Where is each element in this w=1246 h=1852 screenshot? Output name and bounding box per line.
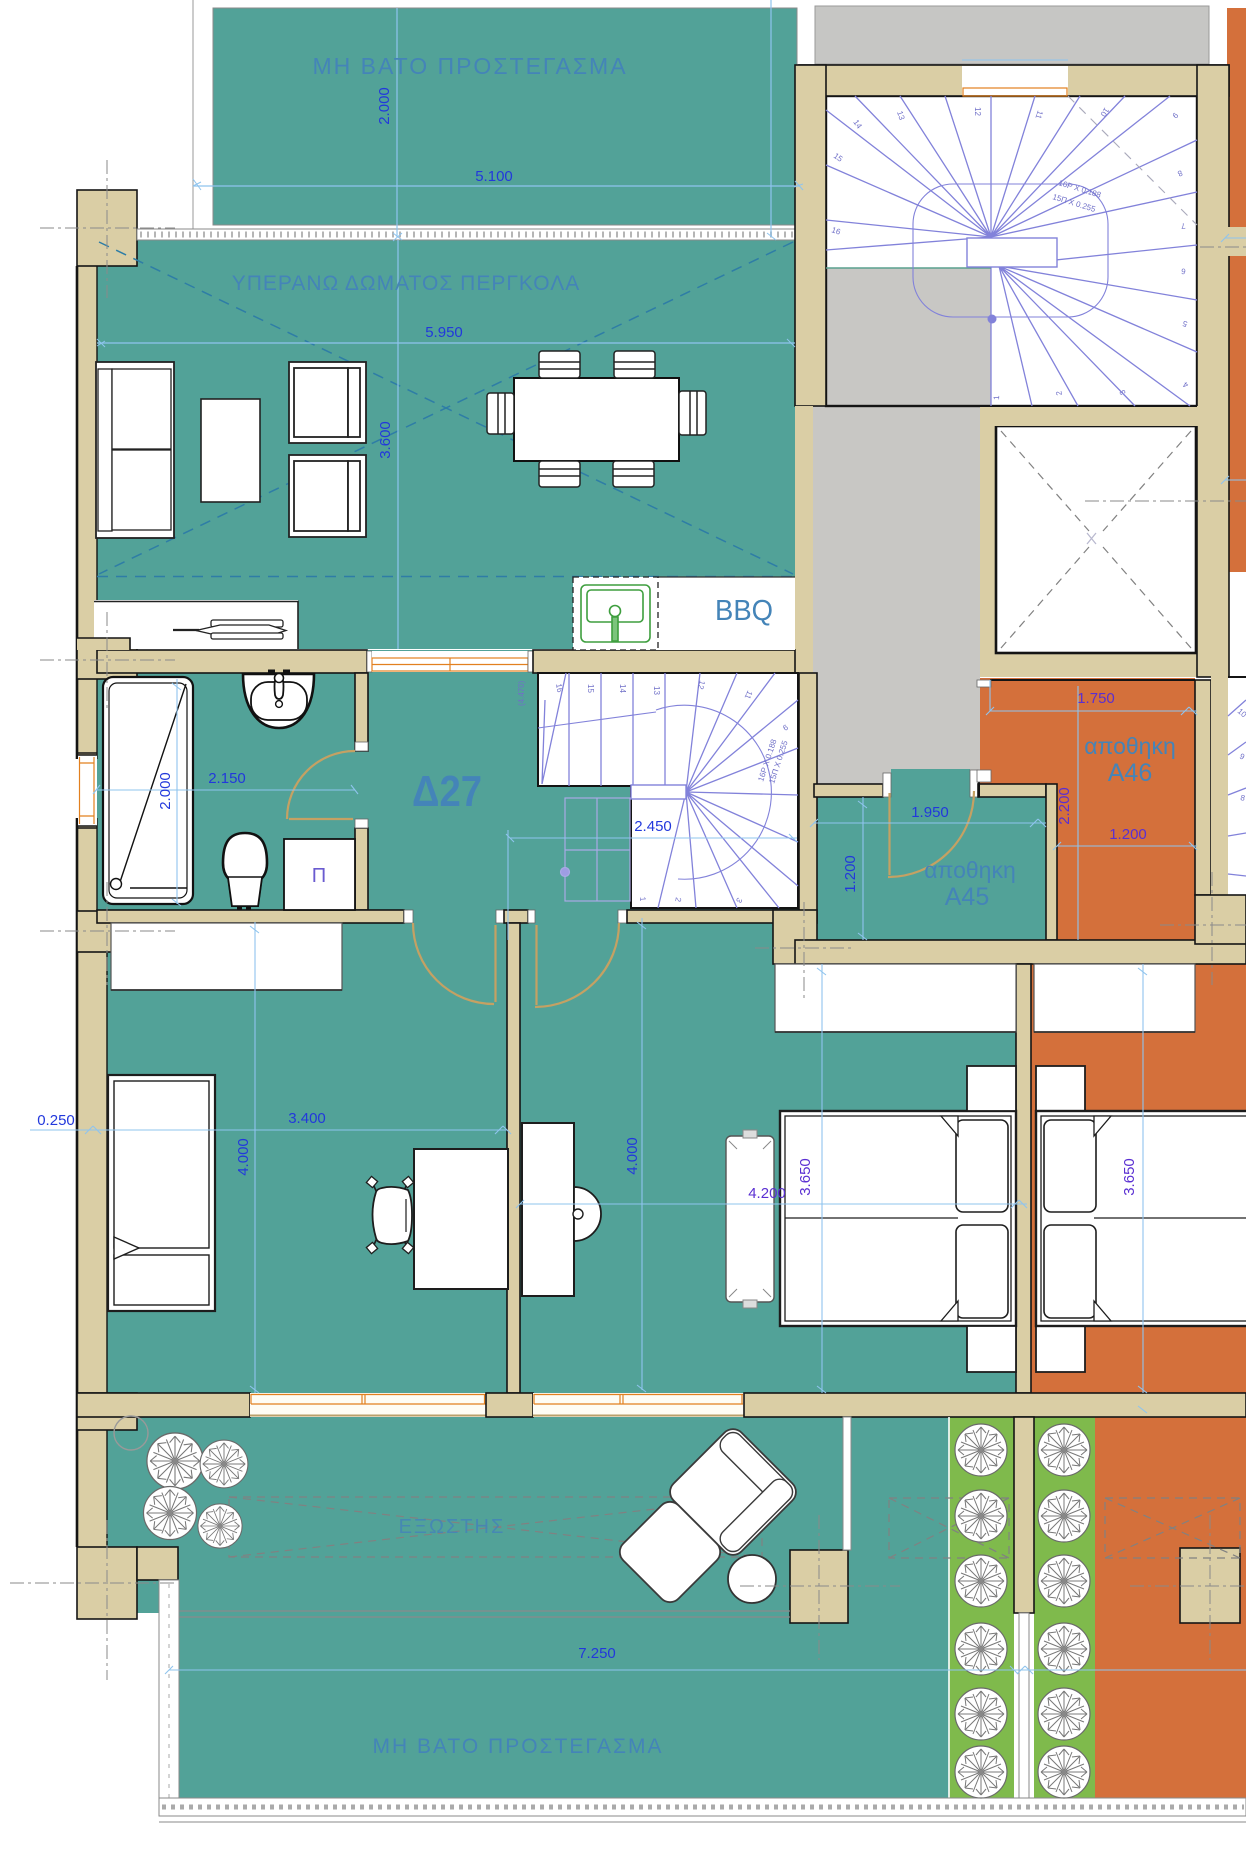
svg-text:2.200: 2.200	[1056, 787, 1073, 825]
svg-text:0.250: 0.250	[37, 1112, 75, 1129]
svg-text:3.400: 3.400	[288, 1110, 326, 1127]
svg-text:ΜΗ ΒΑΤΟ ΠΡΟΣΤΕΓΑΣΜΑ: ΜΗ ΒΑΤΟ ΠΡΟΣΤΕΓΑΣΜΑ	[312, 53, 627, 79]
svg-text:2.150: 2.150	[208, 770, 246, 787]
svg-text:ΜΗ ΒΑΤΟ ΠΡΟΣΤΕΓΑΣΜΑ: ΜΗ ΒΑΤΟ ΠΡΟΣΤΕΓΑΣΜΑ	[372, 1735, 663, 1758]
svg-text:αποθηκη: αποθηκη	[924, 857, 1016, 883]
svg-text:1.200: 1.200	[842, 855, 859, 893]
svg-text:15: 15	[586, 684, 595, 693]
svg-text:ΕΞΩΣΤΗΣ: ΕΞΩΣΤΗΣ	[399, 1516, 506, 1538]
svg-text:αποθηκη: αποθηκη	[1084, 733, 1176, 759]
svg-text:14: 14	[618, 684, 627, 693]
svg-text:7.250: 7.250	[578, 1645, 616, 1662]
svg-text:8: 8	[1240, 793, 1246, 803]
svg-text:4.200: 4.200	[748, 1185, 786, 1202]
svg-text:4.000: 4.000	[235, 1138, 252, 1176]
svg-text:5.100: 5.100	[475, 168, 513, 185]
svg-text:9: 9	[1238, 752, 1246, 762]
svg-text:(4.470): (4.470)	[517, 680, 526, 706]
svg-text:2.000: 2.000	[157, 772, 174, 810]
svg-text:1.200: 1.200	[1109, 826, 1147, 843]
svg-text:3.650: 3.650	[797, 1158, 814, 1196]
svg-text:13: 13	[652, 686, 661, 695]
svg-text:1.750: 1.750	[1077, 690, 1115, 707]
svg-text:Δ27: Δ27	[412, 767, 482, 816]
svg-text:ΥΠΕΡΑΝΩ ΔΩΜΑΤΟΣ ΠΕΡΓΚΟΛΑ: ΥΠΕΡΑΝΩ ΔΩΜΑΤΟΣ ΠΕΡΓΚΟΛΑ	[232, 272, 581, 295]
svg-text:BBQ: BBQ	[715, 595, 773, 627]
svg-text:3.600: 3.600	[377, 421, 394, 459]
svg-text:1.950: 1.950	[911, 804, 949, 821]
svg-text:A45: A45	[945, 883, 989, 911]
svg-text:2.450: 2.450	[634, 818, 672, 835]
svg-text:3.650: 3.650	[1121, 1158, 1138, 1196]
svg-text:Π: Π	[312, 865, 326, 887]
svg-text:2.000: 2.000	[376, 87, 393, 125]
svg-text:4.000: 4.000	[624, 1137, 641, 1175]
svg-text:A46: A46	[1108, 759, 1152, 787]
svg-text:5.950: 5.950	[425, 324, 463, 341]
svg-text:12: 12	[973, 107, 982, 116]
